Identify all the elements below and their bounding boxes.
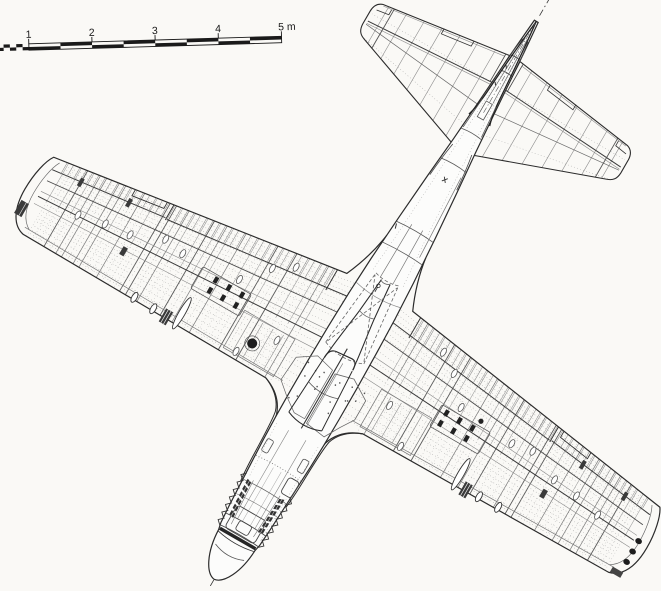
- svg-text:1: 1: [25, 29, 31, 41]
- svg-text:5 m: 5 m: [278, 21, 296, 34]
- svg-text:2: 2: [89, 27, 95, 39]
- svg-text:4: 4: [215, 23, 221, 35]
- svg-text:3: 3: [152, 25, 158, 37]
